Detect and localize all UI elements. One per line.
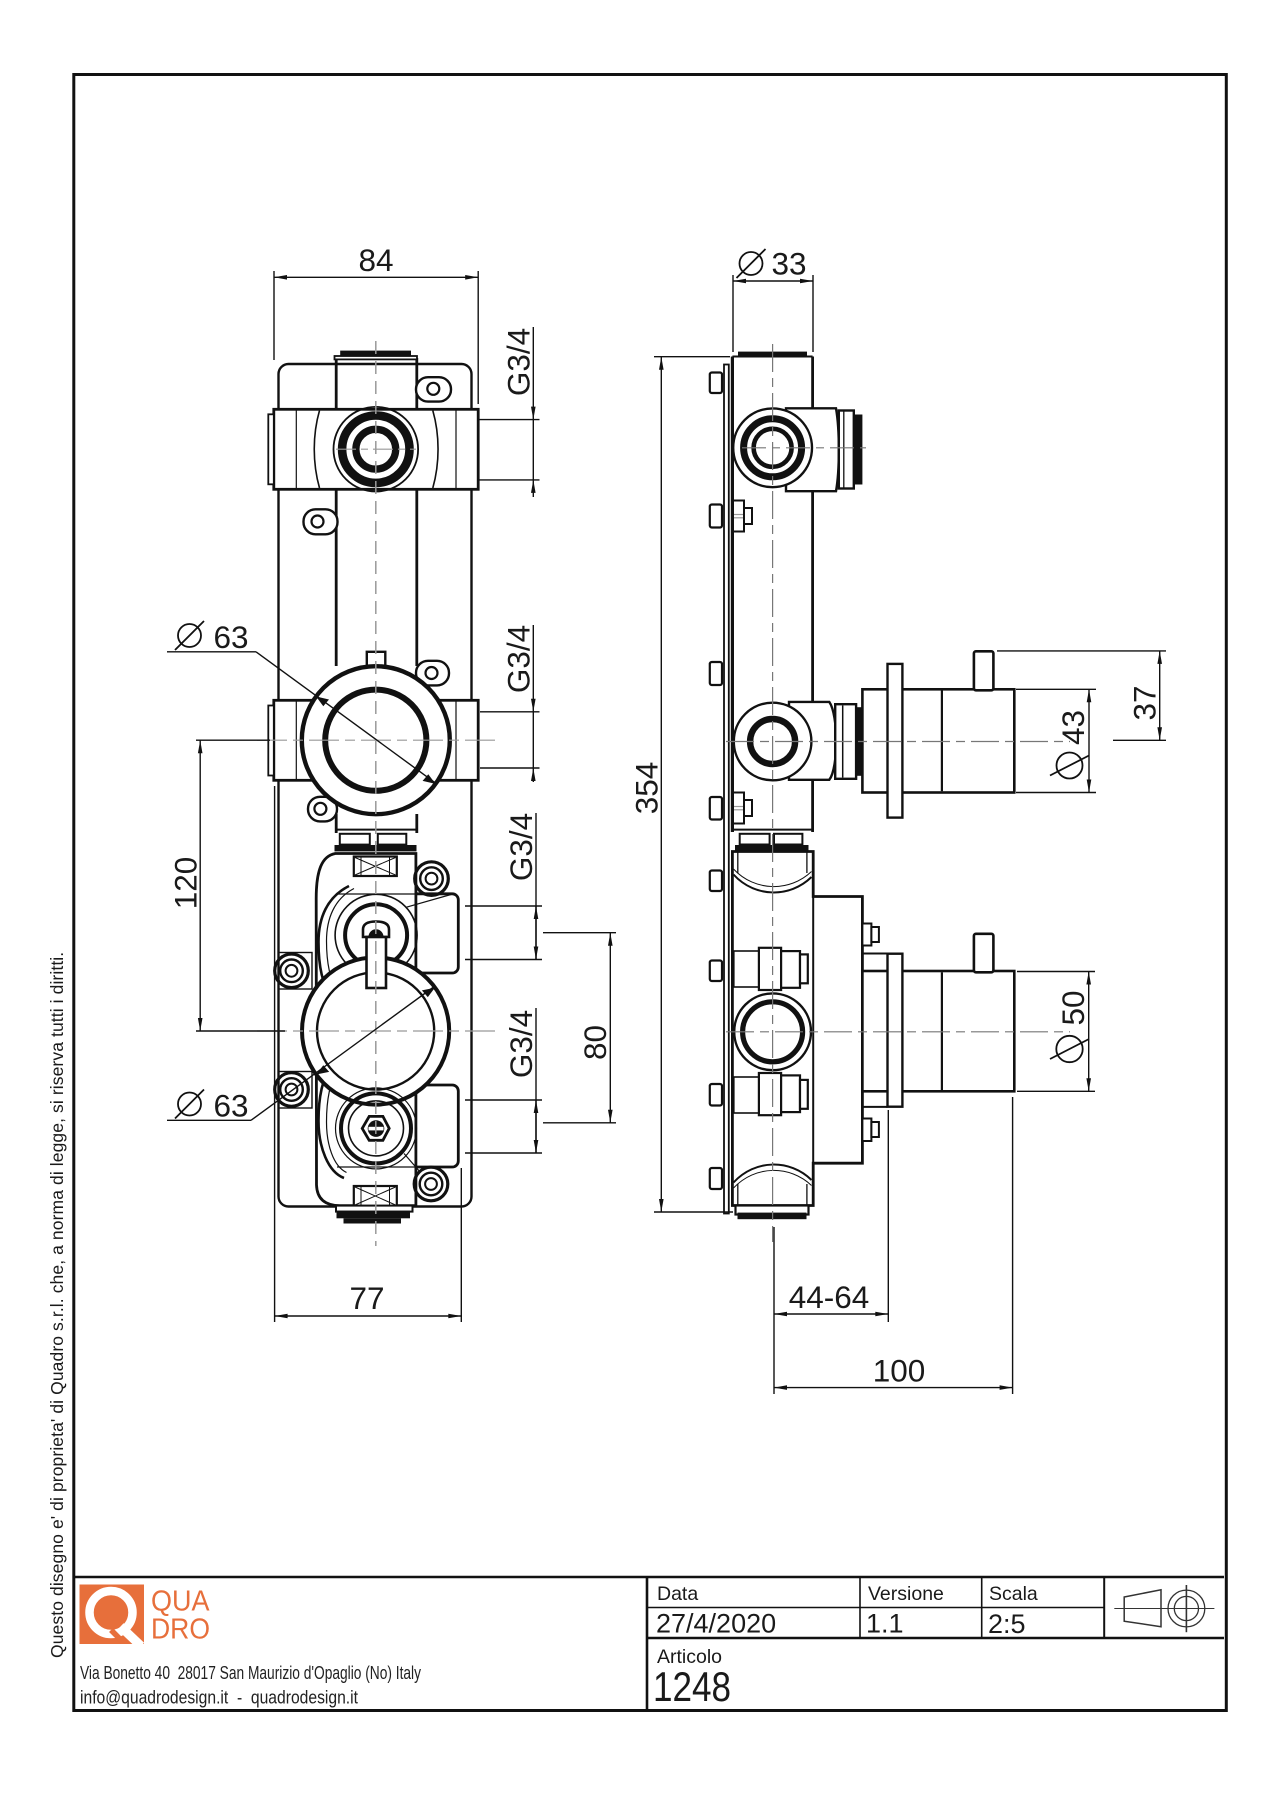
svg-text:G3/4: G3/4 (503, 1010, 539, 1078)
svg-text:80: 80 (577, 1025, 613, 1060)
svg-text:Via Bonetto 40 28017 San Maur: Via Bonetto 40 28017 San Maurizio d'Opag… (80, 1662, 422, 1683)
svg-text:1248: 1248 (653, 1663, 731, 1710)
svg-text:G3/4: G3/4 (501, 328, 537, 396)
svg-text:Versione: Versione (868, 1583, 944, 1605)
svg-text:84: 84 (358, 242, 393, 278)
svg-text:44-64: 44-64 (789, 1279, 870, 1315)
svg-text:50: 50 (1055, 990, 1091, 1025)
svg-text:G3/4: G3/4 (501, 625, 537, 693)
svg-text:37: 37 (1127, 685, 1163, 720)
svg-text:27/4/2020: 27/4/2020 (656, 1609, 776, 1639)
svg-text:info@quadrodesign.it - quadr: info@quadrodesign.it - quadrodesign.it (80, 1687, 358, 1708)
svg-text:63: 63 (213, 619, 248, 655)
svg-text:2:5: 2:5 (988, 1609, 1026, 1639)
svg-text:33: 33 (771, 246, 806, 282)
svg-text:Questo disegno e' di proprieta: Questo disegno e' di proprieta' di Quadr… (47, 952, 67, 1658)
svg-text:77: 77 (349, 1280, 384, 1316)
svg-text:354: 354 (629, 762, 665, 815)
svg-text:43: 43 (1055, 710, 1091, 745)
svg-text:G3/4: G3/4 (503, 813, 539, 881)
svg-text:Scala: Scala (989, 1583, 1038, 1605)
svg-text:100: 100 (873, 1353, 926, 1389)
svg-text:63: 63 (213, 1088, 248, 1124)
svg-text:1.1: 1.1 (866, 1609, 904, 1639)
svg-text:120: 120 (168, 857, 204, 910)
svg-text:DRO: DRO (151, 1614, 210, 1646)
svg-text:Data: Data (657, 1583, 698, 1605)
